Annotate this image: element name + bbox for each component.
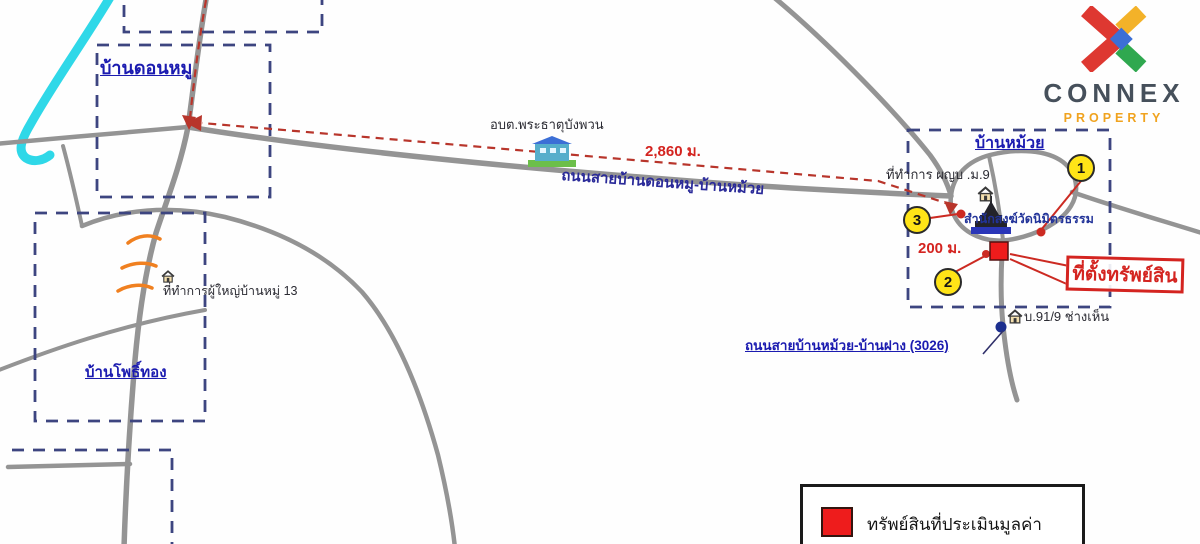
marker-1-number: 1	[1077, 160, 1085, 177]
property-square	[990, 242, 1008, 260]
house-icon-91-9	[1008, 311, 1022, 323]
village-label-ban-muai: บ้านหม้วย	[975, 135, 1045, 153]
logo-brand-text: CONNEX	[1032, 78, 1196, 109]
house-icon-m13	[162, 271, 174, 282]
sao-building-icon	[528, 136, 576, 167]
legend-label-property: ทรัพย์สินที่ประเมินมูลค่า	[867, 511, 1042, 538]
marker-2-number: 2	[944, 274, 952, 291]
road-network	[0, 0, 1200, 544]
map-drawing	[0, 0, 1200, 544]
logo-tagline-text: PROPERTY	[1032, 111, 1196, 125]
place-label-headman-m9: ที่ทำการ ผญบ .ม.9	[886, 168, 990, 183]
house-91-9-dot	[996, 322, 1007, 333]
house-icon-m9	[978, 188, 992, 201]
boundary-top	[124, 0, 322, 32]
legend-box: ทรัพย์สินที่ประเมินมูลค่า	[800, 484, 1085, 544]
distance-label-200m: 200 ม.	[918, 240, 961, 257]
marker-3-number: 3	[913, 212, 921, 229]
place-label-house-91-9: บ.91/9 ช่างเห็น	[1024, 310, 1109, 325]
place-label-sao: อบต.พระธาตุบังพวน	[490, 118, 604, 133]
connex-logo: CONNEX PROPERTY	[1032, 6, 1196, 118]
south-road-leader	[983, 331, 1003, 354]
marker-3: 3	[903, 206, 931, 234]
road-left-vertical	[124, 0, 207, 544]
marker-1: 1	[1067, 154, 1095, 182]
village-label-ban-phothong: บ้านโพธิ์ทอง	[85, 364, 167, 381]
connex-x-icon	[1076, 6, 1152, 72]
village-label-ban-donmu: บ้านดอนหมู	[100, 58, 192, 79]
legend-swatch-property	[821, 507, 853, 537]
distance-label-2860m: 2,860 ม.	[645, 143, 701, 160]
road-diag-left	[0, 310, 205, 372]
marker-2: 2	[934, 268, 962, 296]
road-label-south-3026: ถนนสายบ้านหม้วย-บ้านฝาง (3026)	[745, 338, 949, 354]
place-label-headman-m13: ที่ทำการผู้ใหญ่บ้านหมู่ 13	[163, 284, 297, 298]
road-village-loop	[951, 151, 1076, 241]
property-callout-text: ที่ตั้งทรัพย์สิน	[1072, 258, 1178, 291]
boundary-left	[35, 213, 205, 421]
route-vertical-segment	[190, 0, 206, 118]
property-callout-box: ที่ตั้งทรัพย์สิน	[1066, 255, 1185, 293]
place-label-temple: สำนักสงฆ์วัดนิมิตรธรรม	[964, 212, 1094, 226]
road-bottom-left	[8, 464, 130, 467]
property-location-map: บ้านดอนหมู บ้านหม้วย บ้านโพธิ์ทอง ถนนสาย…	[0, 0, 1200, 544]
